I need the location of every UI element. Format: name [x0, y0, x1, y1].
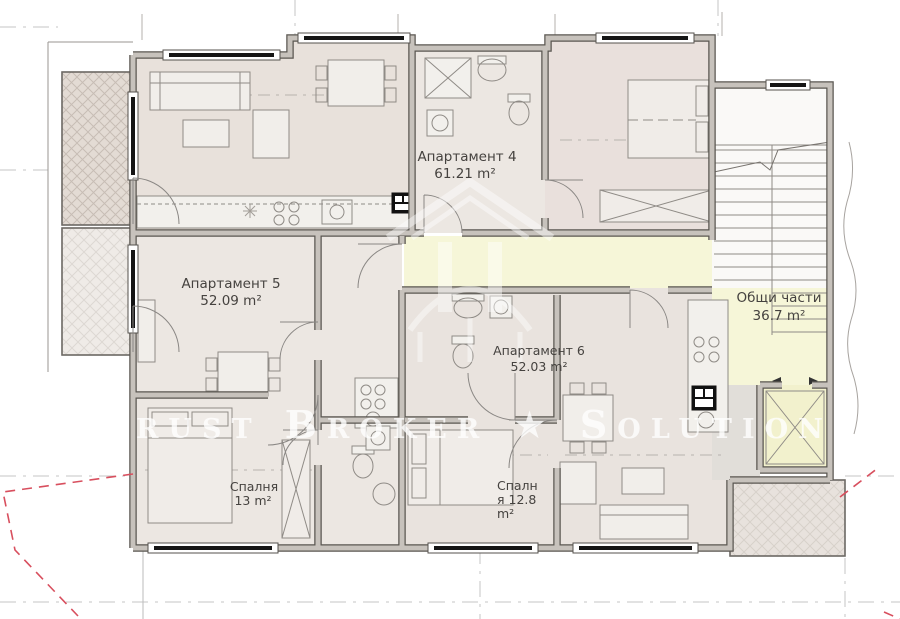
window: [766, 80, 810, 90]
label-bedroom-ap5-area: 13 m²: [234, 493, 271, 508]
window: [573, 543, 698, 553]
window: [163, 50, 280, 60]
decor-icon: [243, 204, 257, 218]
sofa: [150, 72, 250, 110]
stairwell-floor: [712, 85, 830, 310]
floor-plan-drawing: Trust Broker ★ Solutions Апартамент 4 61…: [0, 0, 900, 619]
label-common-area: 36.7 m²: [753, 308, 806, 324]
coffee-table-ap6: [622, 468, 664, 494]
balcony-bottom-right: [730, 480, 845, 556]
label-common-name: Общи части: [736, 290, 821, 306]
label-bedroom-ap6-line2: я 12.8: [497, 492, 536, 507]
window: [428, 543, 538, 553]
sofa-ap6: [600, 505, 688, 539]
bed-ap4: [628, 80, 710, 158]
label-bedroom-ap6-line1: Спалн: [497, 478, 538, 493]
window: [128, 92, 138, 180]
washing-machine-ap4: [427, 110, 453, 136]
label-apartment6-area: 52.03 m²: [511, 359, 568, 374]
cabinet-ap5: [138, 300, 155, 362]
window: [298, 33, 410, 43]
label-apartment4-area: 61.21 m²: [434, 166, 496, 182]
window: [148, 543, 278, 553]
label-apartment5-name: Апартамент 5: [181, 276, 280, 292]
floor-plan-page: Trust Broker ★ Solutions Апартамент 4 61…: [0, 0, 900, 619]
balcony-top-left: [62, 72, 133, 225]
dining-table: [316, 60, 396, 106]
label-apartment5-area: 52.09 m²: [200, 293, 262, 309]
armchair-ap6: [560, 462, 596, 504]
coffee-table: [183, 120, 229, 147]
label-bedroom-ap5-name: Спалня: [230, 479, 278, 494]
label-apartment4-name: Апартамент 4: [417, 149, 516, 165]
armchair: [253, 110, 289, 158]
label-bedroom-ap6-line3: m²: [497, 506, 514, 521]
shower: [425, 58, 471, 98]
label-apartment6-name: Апартамент 6: [493, 343, 585, 358]
wardrobe-ap5: [282, 440, 310, 538]
balcony-mid-left: [62, 228, 133, 355]
window: [596, 33, 694, 43]
wardrobe-ap4: [600, 190, 712, 222]
watermark-text: Trust Broker ★ Solutions: [98, 402, 863, 447]
